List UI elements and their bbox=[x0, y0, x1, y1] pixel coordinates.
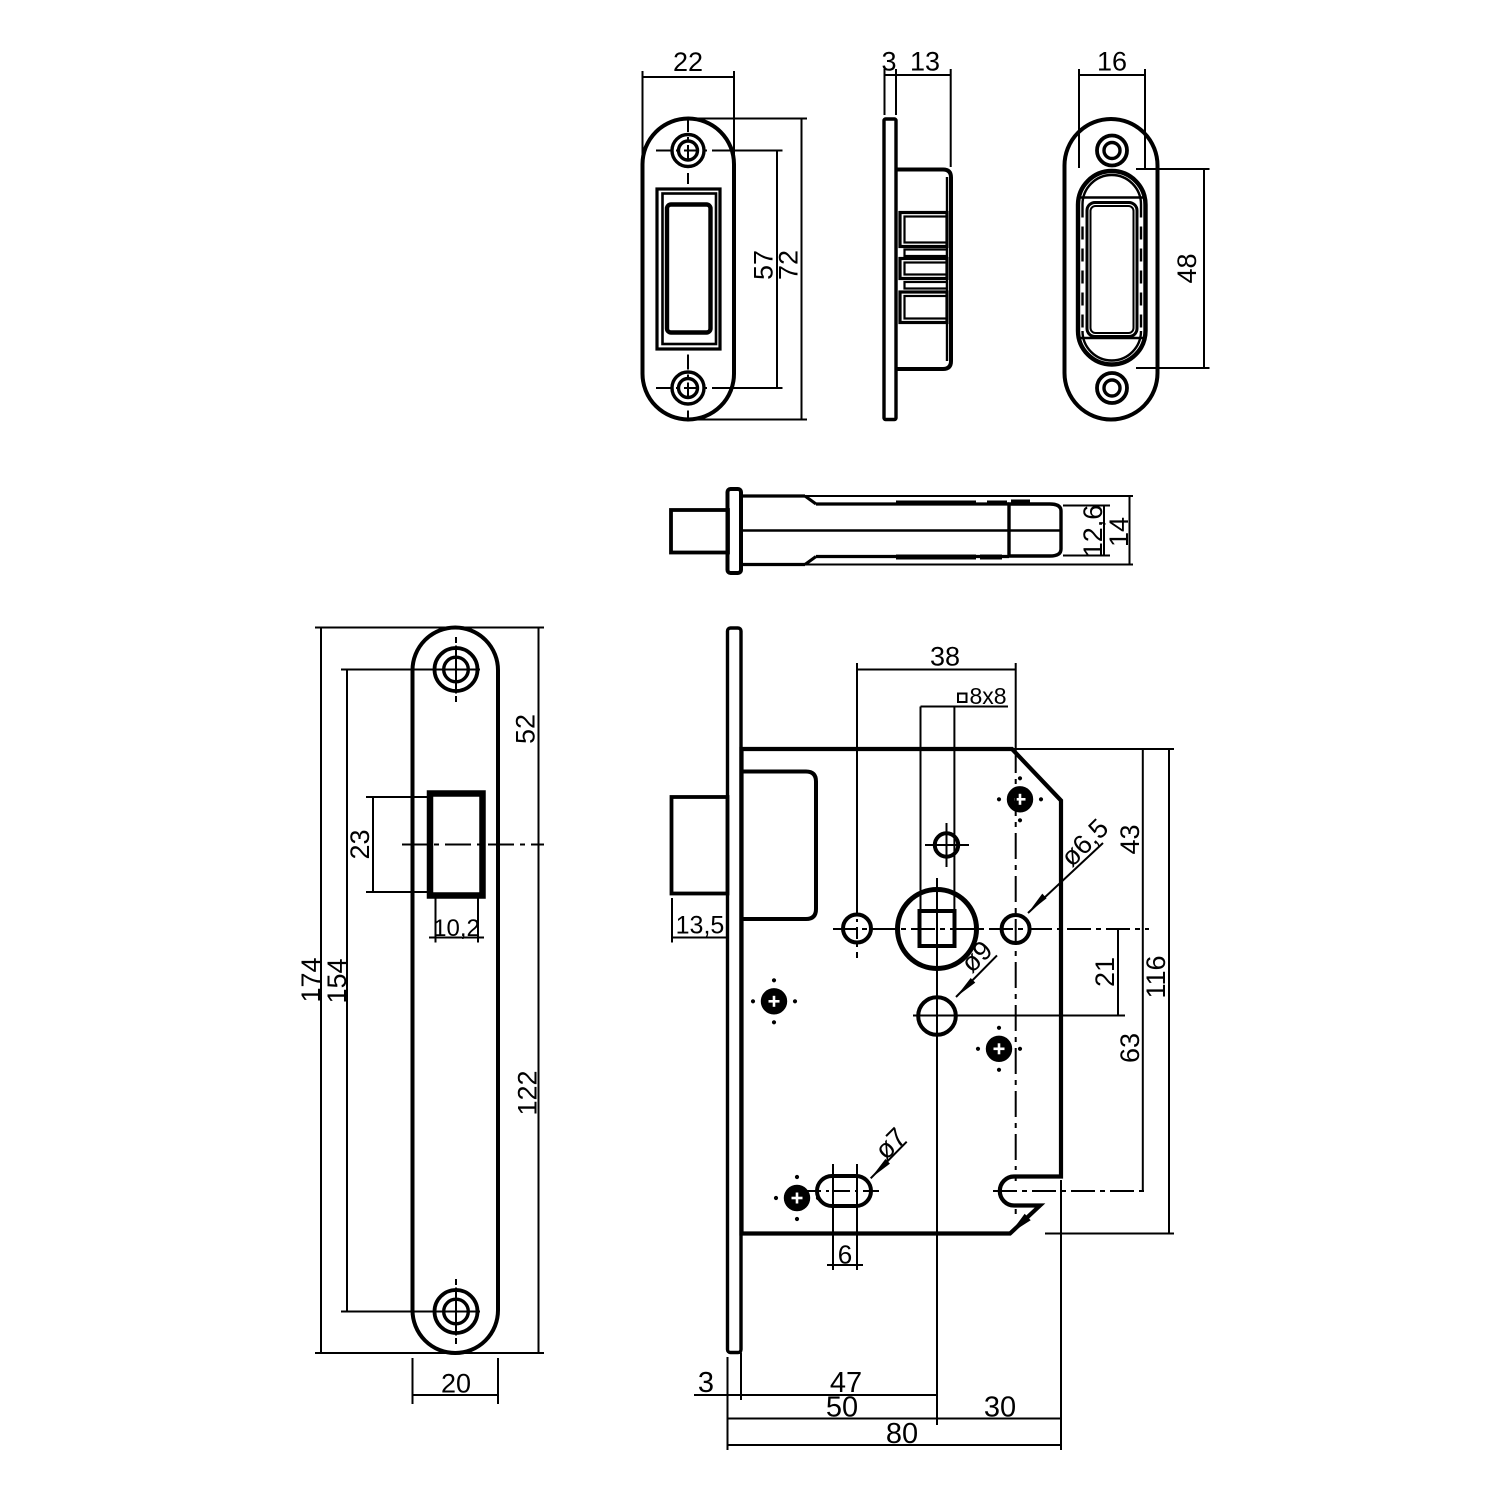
svg-text:21: 21 bbox=[1090, 957, 1120, 987]
svg-text:72: 72 bbox=[774, 250, 804, 280]
svg-text:23: 23 bbox=[345, 829, 375, 859]
svg-text:8x8: 8x8 bbox=[970, 683, 1007, 709]
svg-text:10,2: 10,2 bbox=[433, 915, 480, 942]
svg-text:48: 48 bbox=[1172, 253, 1202, 283]
svg-text:52: 52 bbox=[511, 714, 541, 744]
svg-text:13,5: 13,5 bbox=[676, 912, 725, 940]
svg-text:63: 63 bbox=[1115, 1033, 1145, 1063]
svg-text:14: 14 bbox=[1104, 517, 1134, 547]
svg-text:116: 116 bbox=[1141, 955, 1171, 998]
svg-text:122: 122 bbox=[513, 1070, 543, 1115]
svg-text:22: 22 bbox=[673, 47, 703, 77]
svg-text:20: 20 bbox=[441, 1369, 471, 1399]
svg-text:3: 3 bbox=[698, 1367, 714, 1399]
svg-text:30: 30 bbox=[984, 1392, 1016, 1424]
svg-text:13: 13 bbox=[910, 47, 940, 77]
svg-text:43: 43 bbox=[1115, 824, 1145, 854]
svg-text:80: 80 bbox=[886, 1418, 918, 1450]
svg-text:16: 16 bbox=[1097, 47, 1127, 77]
svg-text:38: 38 bbox=[930, 642, 960, 672]
svg-text:154: 154 bbox=[322, 958, 352, 1003]
svg-text:6: 6 bbox=[838, 1240, 852, 1270]
svg-text:50: 50 bbox=[826, 1392, 858, 1424]
